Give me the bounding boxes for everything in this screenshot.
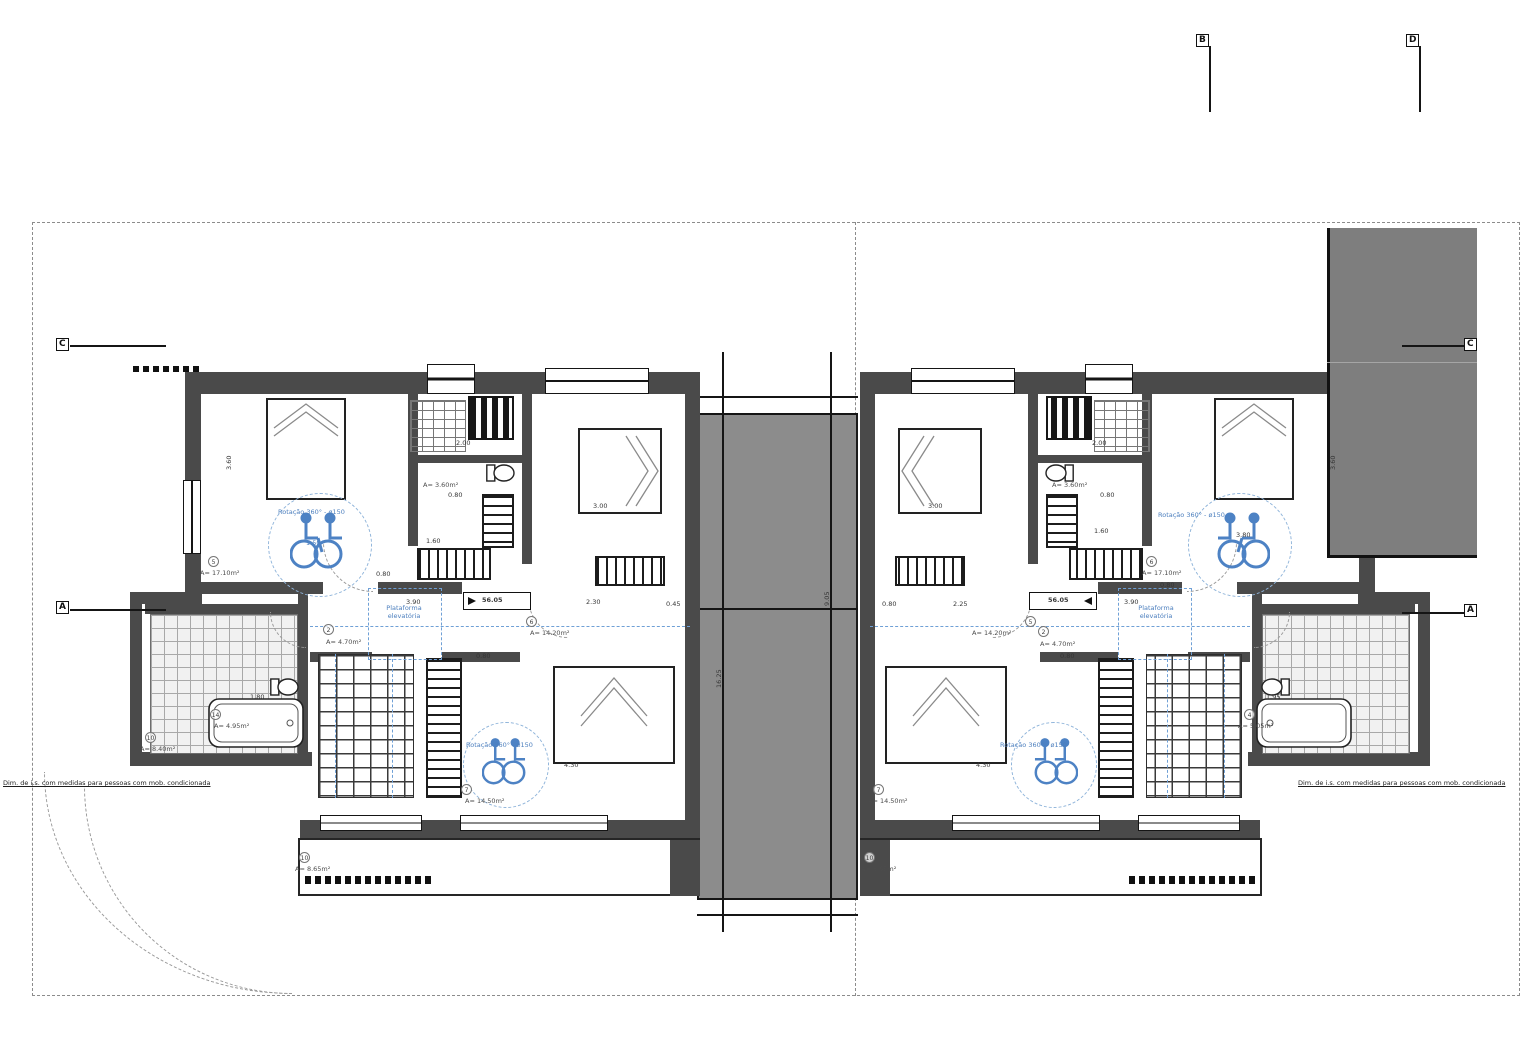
section-line-right	[830, 352, 832, 932]
room-tag: 10	[299, 852, 310, 863]
dim: 2.25	[953, 601, 967, 608]
room-tag: 6	[526, 616, 537, 627]
section-marker-c-right-line	[1402, 345, 1464, 347]
room-area: A= 4.70m²	[1040, 641, 1075, 649]
dim-master-height-h1: 3.60	[226, 456, 233, 470]
room-area: A= 3.60m²	[423, 482, 458, 490]
room-tag: 7	[873, 784, 884, 795]
dim: 1.60	[426, 538, 440, 545]
room-tag: 10	[145, 732, 156, 743]
room-tag: 5	[208, 556, 219, 567]
dim: 1.80	[250, 694, 264, 701]
section-line-left	[722, 352, 724, 932]
level-value: 56.05	[1048, 597, 1069, 604]
rotation-label: Rotação 360° - ø150	[1000, 742, 1067, 750]
dim: 0.80	[1160, 582, 1174, 589]
section-marker-a-left-line	[70, 609, 166, 611]
level-value: 56.05	[482, 597, 503, 604]
dim: 0.80	[376, 571, 390, 578]
room-tag: 2	[323, 624, 334, 635]
room-area: A= 8.65m²	[861, 866, 896, 874]
dim: 3.00	[928, 503, 942, 510]
room-tag: 5	[1025, 616, 1036, 627]
room-area: A= 4.70m²	[326, 639, 361, 647]
dim-center-patio: 9.05	[824, 592, 831, 606]
dim: 0.80	[476, 653, 490, 660]
dim: 0.80	[448, 492, 462, 499]
rotation-diameter: 1.50	[306, 540, 320, 547]
room-area: A= 14.20m²	[530, 630, 570, 638]
accessibility-note-left: Dim. de i.s. com medidas para pessoas co…	[3, 779, 210, 787]
rotation-label: Rotação 360° - ø150	[278, 509, 345, 517]
room-area: A= 17.10m²	[1142, 570, 1182, 578]
section-marker-b: B	[1196, 34, 1209, 47]
lift-label: Plataforma elevatória	[1122, 605, 1190, 621]
section-marker-d-line	[1419, 46, 1421, 112]
house2: Rotação 360° - ø150 1.60 3.80 6 A= 17.10…	[860, 360, 1430, 900]
dim: 0.45	[666, 601, 680, 608]
room-tag: 2	[1038, 626, 1049, 637]
room-tag: 10	[864, 852, 875, 863]
room-tag: 14	[210, 709, 221, 720]
rotation-label: Rotação 360° - ø150	[1158, 512, 1225, 520]
room-area: A= 14.50m²	[868, 798, 908, 806]
dim: 0.80	[1100, 492, 1114, 499]
dim: 2.00	[456, 440, 470, 447]
dim: 2.30	[586, 599, 600, 606]
dim: 3.00	[593, 503, 607, 510]
room-tag: 4	[1244, 709, 1255, 720]
room-area: A= 3.60m²	[1052, 482, 1087, 490]
dim: 0.80	[882, 601, 896, 608]
room-area: A= 14.20m²	[972, 630, 1012, 638]
dim: 1.95	[1266, 694, 1280, 701]
shaft-cross-line	[697, 608, 858, 610]
dim-center-main: 16.25	[716, 669, 723, 688]
dim: 4.30	[564, 762, 578, 769]
house1-labels: Rotação 360° - ø150 1.50 5 A= 17.10m² A=…	[130, 360, 700, 900]
room-area: A= 5.05m²	[1238, 723, 1273, 731]
section-marker-a-left: A	[56, 601, 69, 614]
dim: 2.00	[1092, 440, 1106, 447]
section-marker-d: D	[1406, 34, 1419, 47]
lift-label: Plataforma elevatória	[370, 605, 438, 621]
dim: 3.80	[1236, 532, 1250, 539]
room-area: A= 14.50m²	[465, 798, 505, 806]
section-marker-c-left: C	[56, 338, 69, 351]
room-area: A= 4.95m²	[214, 723, 249, 731]
dim: 0.80	[1060, 653, 1074, 660]
section-marker-b-line	[1209, 46, 1211, 112]
section-marker-c-left-line	[70, 345, 166, 347]
floor-plan-canvas: 16.25 9.05	[0, 0, 1537, 1037]
room-tag: 6	[1146, 556, 1157, 567]
section-marker-a-right: A	[1464, 604, 1477, 617]
dim: 1.60	[1094, 528, 1108, 535]
room-area: A= 17.10m²	[200, 570, 240, 578]
room-area: A= 8.40m²	[140, 746, 175, 754]
house2-labels: Rotação 360° - ø150 1.60 3.80 6 A= 17.10…	[860, 360, 1430, 900]
dim: 4.30	[976, 762, 990, 769]
rotation-label: Rotação 360° - ø150	[466, 742, 533, 750]
room-area: A= 8.65m²	[295, 866, 330, 874]
section-marker-c-right: C	[1464, 338, 1477, 351]
room-tag: 7	[461, 784, 472, 795]
house1: Rotação 360° - ø150 1.50 5 A= 17.10m² A=…	[130, 360, 700, 900]
